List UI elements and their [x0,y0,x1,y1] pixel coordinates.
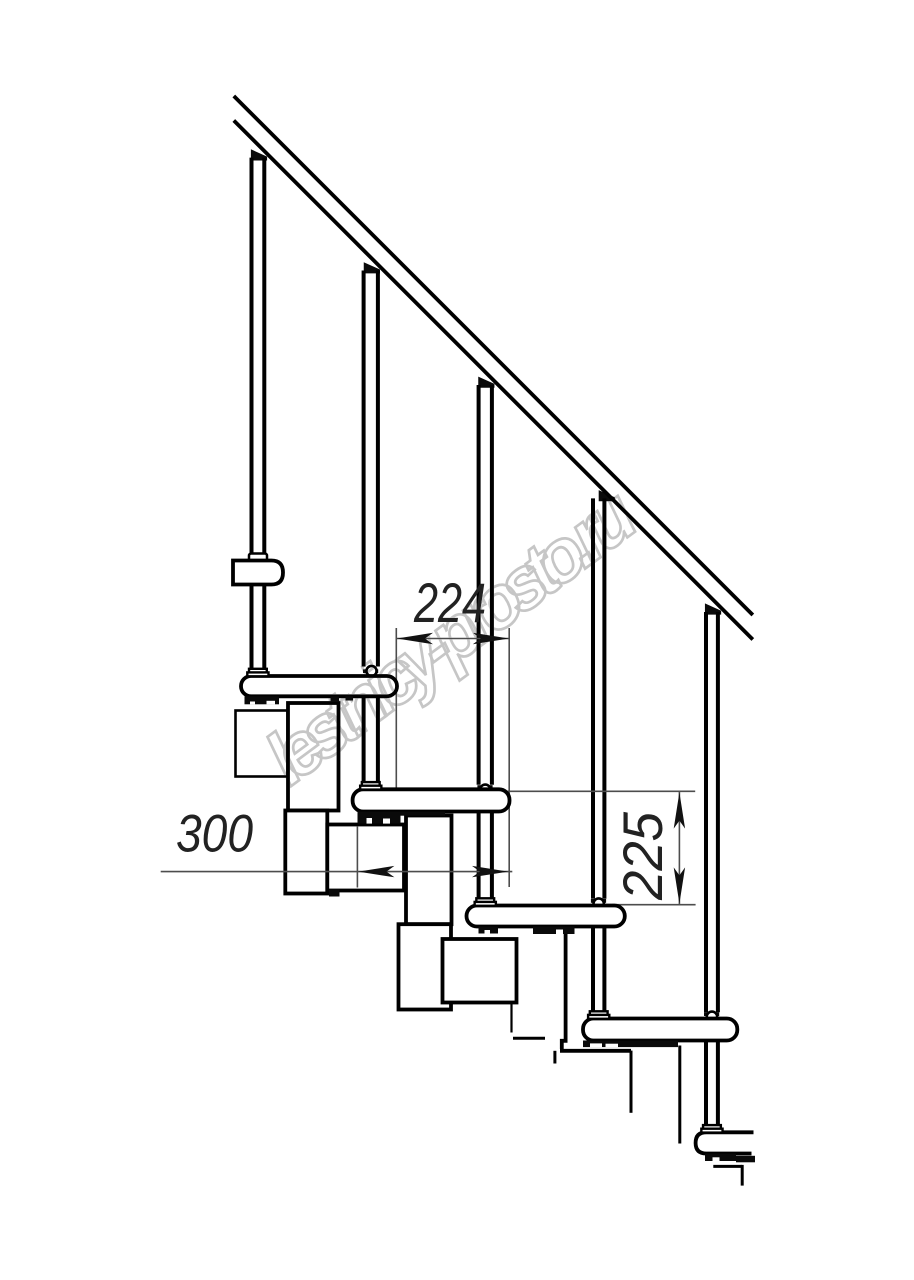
svg-text:lestnicy-prosto.ru: lestnicy-prosto.ru [250,473,650,800]
svg-text:225: 225 [611,811,674,901]
svg-text:300: 300 [176,805,253,864]
